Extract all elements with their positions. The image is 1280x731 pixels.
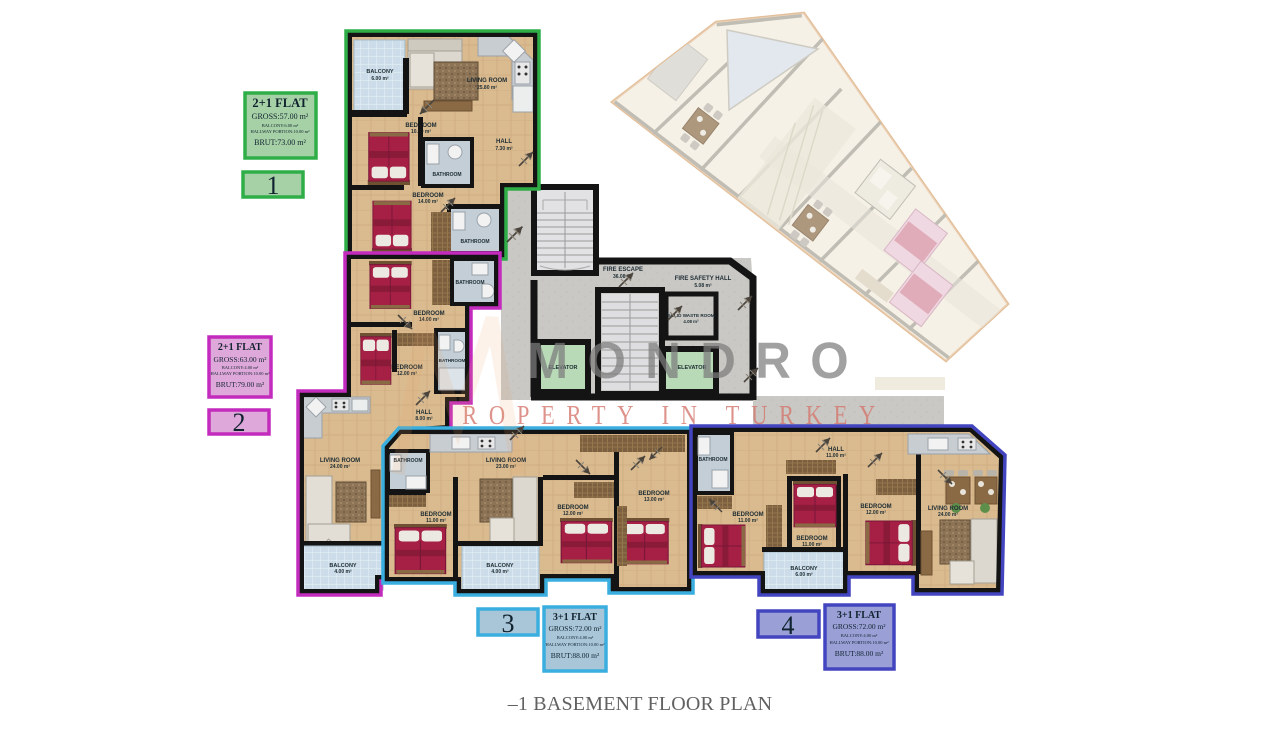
svg-text:BATHROOM: BATHROOM — [698, 457, 727, 463]
svg-text:BATHROOM: BATHROOM — [460, 239, 489, 245]
svg-text:6.00 m²: 6.00 m² — [371, 76, 389, 82]
svg-text:4.00 m²: 4.00 m² — [334, 569, 352, 575]
svg-text:HALLWAY PORTION:10.00 m²: HALLWAY PORTION:10.00 m² — [210, 371, 270, 376]
svg-text:–1 BASEMENT FLOOR PLAN: –1 BASEMENT FLOOR PLAN — [507, 693, 773, 715]
svg-text:11.00 m²: 11.00 m² — [426, 518, 446, 524]
svg-text:5.08 m²: 5.08 m² — [694, 283, 712, 289]
svg-text:25.80 m²: 25.80 m² — [477, 85, 497, 91]
svg-text:BALCONY:4.00 m²: BALCONY:4.00 m² — [841, 633, 878, 638]
svg-text:HALLWAY PORTION:10.00 m²: HALLWAY PORTION:10.00 m² — [250, 129, 310, 134]
svg-text:BALCONY:4.00 m²: BALCONY:4.00 m² — [557, 635, 594, 640]
svg-text:3+1 FLAT: 3+1 FLAT — [553, 612, 597, 623]
svg-text:3: 3 — [502, 609, 515, 638]
svg-text:BRUT:79.00 m²: BRUT:79.00 m² — [216, 380, 265, 389]
svg-text:FIRE ESCAPE: FIRE ESCAPE — [603, 267, 643, 273]
svg-text:BATHROOM: BATHROOM — [432, 172, 461, 178]
svg-text:3+1 FLAT: 3+1 FLAT — [837, 610, 881, 621]
svg-text:BRUT:73.00 m²: BRUT:73.00 m² — [254, 138, 306, 147]
svg-text:HALLWAY PORTION:10.00 m²: HALLWAY PORTION:10.00 m² — [545, 642, 605, 647]
svg-text:HALL: HALL — [496, 139, 512, 145]
svg-text:GROSS:72.00 m²: GROSS:72.00 m² — [832, 622, 886, 631]
svg-text:BALCONY: BALCONY — [366, 69, 394, 75]
svg-text:13.00 m²: 13.00 m² — [644, 497, 664, 503]
svg-text:11.00 m²: 11.00 m² — [826, 453, 846, 459]
svg-text:GROSS:63.00 m²: GROSS:63.00 m² — [213, 355, 267, 364]
svg-text:6.00 m²: 6.00 m² — [795, 572, 813, 578]
svg-text:LIVING ROOM: LIVING ROOM — [467, 78, 507, 84]
svg-text:HALLWAY PORTION:10.00 m²: HALLWAY PORTION:10.00 m² — [829, 640, 889, 645]
svg-text:FIRE SAFETY HALL: FIRE SAFETY HALL — [675, 276, 732, 282]
svg-text:14.00 m²: 14.00 m² — [418, 199, 438, 205]
svg-text:BATHROOM: BATHROOM — [455, 280, 484, 286]
svg-text:8.00 m²: 8.00 m² — [415, 416, 433, 422]
svg-text:7.30 m²: 7.30 m² — [495, 146, 513, 152]
svg-text:4: 4 — [782, 611, 795, 640]
svg-text:24.00 m²: 24.00 m² — [938, 512, 958, 518]
svg-text:GROSS:72.00 m²: GROSS:72.00 m² — [548, 624, 602, 633]
svg-text:1: 1 — [267, 171, 280, 200]
svg-text:GROSS:57.00 m²: GROSS:57.00 m² — [252, 112, 309, 121]
svg-text:BALCONY:6.00 m²: BALCONY:6.00 m² — [262, 123, 299, 128]
svg-text:2: 2 — [233, 408, 246, 437]
svg-text:4.00 m²: 4.00 m² — [491, 569, 509, 575]
svg-text:BRUT:88.00 m²: BRUT:88.00 m² — [835, 649, 884, 658]
svg-text:BRUT:88.00 m²: BRUT:88.00 m² — [551, 651, 600, 660]
svg-text:4.08 m²: 4.08 m² — [683, 319, 699, 324]
svg-text:11.00 m²: 11.00 m² — [738, 518, 758, 524]
svg-text:12.00 m²: 12.00 m² — [866, 510, 886, 516]
svg-text:MONDRO: MONDRO — [527, 332, 868, 389]
svg-text:12.00 m²: 12.00 m² — [563, 511, 583, 517]
svg-text:2+1 FLAT: 2+1 FLAT — [252, 96, 308, 110]
svg-text:2+1 FLAT: 2+1 FLAT — [218, 342, 262, 353]
svg-text:24.00 m²: 24.00 m² — [330, 464, 350, 470]
svg-text:BALCONY:4.00 m²: BALCONY:4.00 m² — [222, 365, 259, 370]
